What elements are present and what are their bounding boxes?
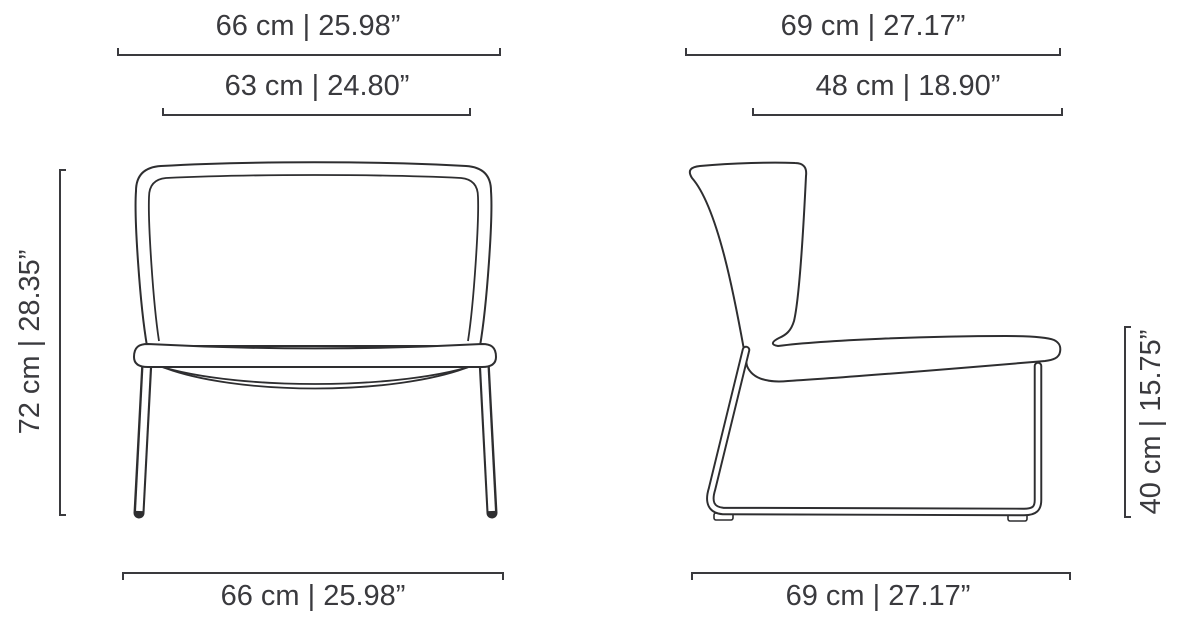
dim-label-side-base-depth: 69 cm | 27.17” — [786, 581, 971, 613]
dim-line-side-right — [1125, 327, 1131, 517]
dim-line-side-top-inner — [753, 108, 1062, 115]
front-seat — [134, 344, 496, 367]
dim-label-side-seat-height: 40 cm | 15.75” — [1136, 330, 1168, 515]
chair-drawing-canvas — [0, 0, 1188, 628]
dimension-diagram: 66 cm | 25.98” 63 cm | 24.80” 72 cm | 28… — [0, 0, 1188, 628]
front-backrest-outline — [136, 162, 492, 346]
dim-label-front-overall-width: 66 cm | 25.98” — [216, 11, 401, 43]
dim-line-front-top-inner — [163, 108, 470, 115]
front-view-chair — [134, 162, 496, 513]
side-view-chair — [690, 163, 1061, 521]
dim-line-front-top-outer — [118, 48, 500, 55]
dim-label-front-base-width: 66 cm | 25.98” — [221, 581, 406, 613]
dim-line-side-bottom — [692, 573, 1070, 580]
dim-label-side-overall-depth: 69 cm | 27.17” — [781, 11, 966, 43]
dim-label-front-upper-width: 63 cm | 24.80” — [225, 71, 410, 103]
dim-line-side-top-outer — [686, 48, 1060, 55]
dim-line-front-left — [60, 170, 66, 515]
dim-line-front-bottom — [123, 573, 503, 580]
dim-label-side-seat-depth: 48 cm | 18.90” — [816, 71, 1001, 103]
dim-label-front-overall-height: 72 cm | 28.35” — [15, 250, 47, 435]
